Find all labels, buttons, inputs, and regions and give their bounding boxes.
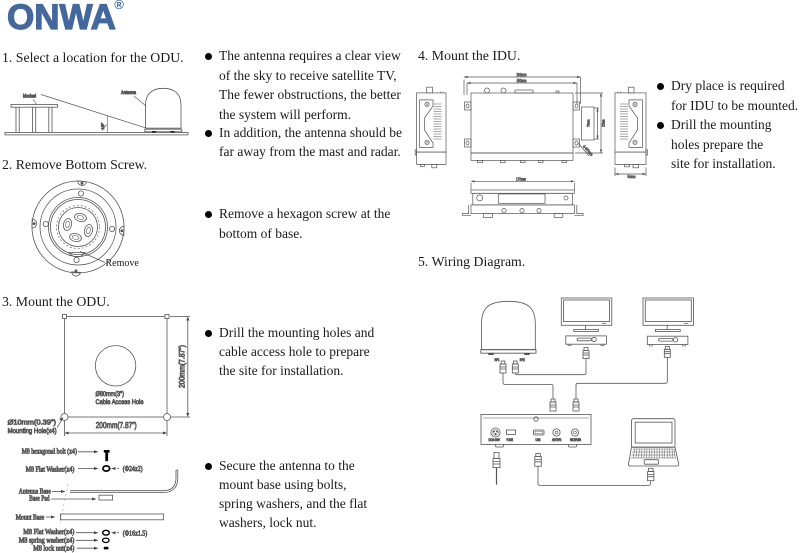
svg-text:Mount Base: Mount Base: [16, 512, 45, 521]
svg-text:122mm: 122mm: [602, 119, 606, 127]
svg-text:Base Pad: Base Pad: [29, 493, 50, 502]
svg-text:Cable Access Hole: Cable Access Hole: [96, 399, 144, 406]
svg-text:Mounting Hole(x4): Mounting Hole(x4): [8, 427, 57, 435]
svg-text:M8 lock nut(x4): M8 lock nut(x4): [33, 543, 75, 552]
svg-text:170mm: 170mm: [516, 176, 526, 181]
svg-text:150mm: 150mm: [517, 78, 527, 83]
svg-text:RF1: RF1: [495, 358, 500, 362]
svg-text:RECEIVER: RECEIVER: [570, 438, 581, 442]
svg-text:ANT/RF1: ANT/RF1: [552, 438, 562, 442]
svg-text:200mm(7.87"): 200mm(7.87"): [96, 420, 137, 430]
svg-text:76mm: 76mm: [587, 120, 591, 128]
svg-text:USB: USB: [536, 438, 541, 442]
svg-text:202mm: 202mm: [517, 72, 527, 77]
svg-text:RF2: RF2: [520, 358, 525, 362]
svg-text:M8 hexagonal bolt (x4): M8 hexagonal bolt (x4): [22, 447, 78, 456]
svg-text:Ø10mm(0.39"): Ø10mm(0.39"): [8, 418, 56, 426]
svg-text:Antenna: Antenna: [121, 90, 136, 96]
svg-text:M8 Flat Washer(x4): M8 Flat Washer(x4): [26, 464, 75, 473]
svg-text:M8 Flat Washer(x4): M8 Flat Washer(x4): [23, 527, 75, 536]
svg-text:(Φ16x1.5): (Φ16x1.5): [123, 528, 148, 537]
svg-text:200mm(7.87"): 200mm(7.87"): [178, 345, 187, 388]
svg-text:Ø80mm(3"): Ø80mm(3"): [96, 391, 125, 398]
svg-text:blocked: blocked: [23, 94, 36, 100]
svg-text:54mm: 54mm: [628, 174, 636, 179]
svg-text:15°: 15°: [100, 122, 105, 129]
svg-text:FUSE: FUSE: [507, 438, 514, 442]
svg-text:DC9-36V: DC9-36V: [489, 438, 501, 442]
svg-text:(Φ24x2): (Φ24x2): [123, 464, 143, 473]
